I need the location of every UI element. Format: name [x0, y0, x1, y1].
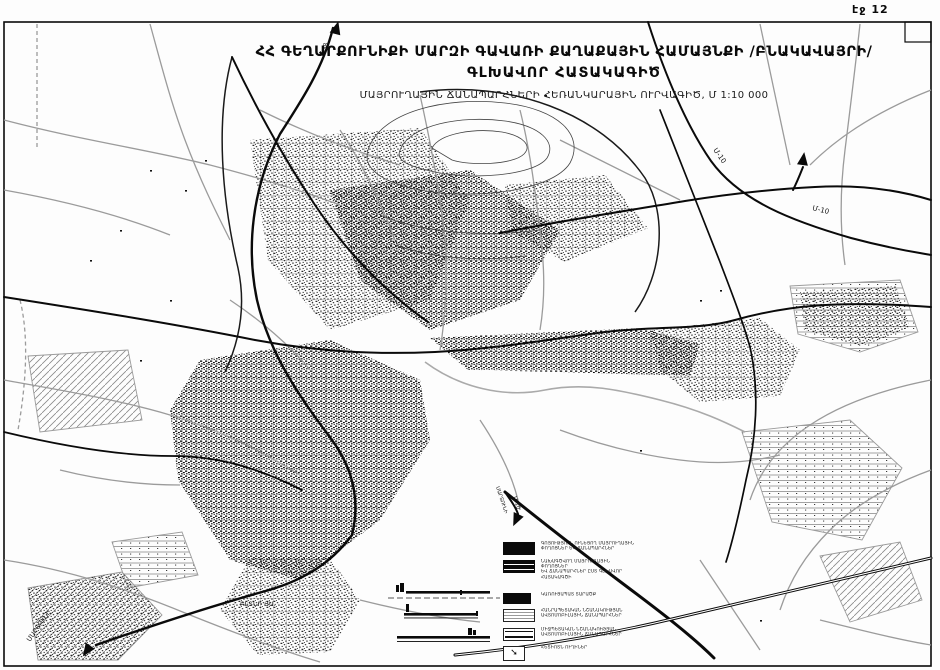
scale-bar-1 — [388, 583, 500, 598]
legend-item-label: ՀԵՏԻՈՏՆ ՈՒՂԻՆԵՐ — [541, 645, 636, 650]
legend-item-label: ՆԱԽԱԳԾՎՈՂ ՄԱՅՐՈՒՂԱՅԻՆ ՓՈՂՈՑՆԵՐ ԵՎ ՃԱՆԱՊԱ… — [541, 559, 636, 580]
planned-main-road-symbol — [503, 560, 535, 573]
legend-item-label: ՀԱՆՐԱՊԵՏԱԿԱՆ ՆՇԱՆԱԿՈՒԹՅԱՆ ԱՎՏՈՄՈԲԻԼԱՅԻՆ … — [541, 608, 636, 618]
legend-item-label: ԳՈՅՈՒԹՅՈՒՆ ՈՒՆԵՑՈՂ ՄԱՅՐՈՒՂԱՅԻՆ ՓՈՂՈՑՆԵՐ … — [541, 541, 636, 551]
pedestrian-route-arrow-icon: ➘ — [503, 646, 525, 661]
frame-corner-notch — [905, 22, 931, 42]
road-label-m10-upper: Մ-10 — [711, 147, 727, 166]
road-label-martuni-south: ՄԱՐՏՈՒՆԻ — [494, 486, 509, 515]
northeast-exit-arrow — [797, 151, 810, 165]
republican-road-symbol — [503, 609, 535, 622]
legend-item-label: ԿԱՌՈՒՑԱՊԱՏ ՏԱՐԱԾՔ — [541, 592, 636, 597]
scale-bars — [388, 583, 500, 642]
district-label: ԲԼՏՆԻ ՅԱ. — [240, 600, 276, 608]
legend-item-built-up: ԿԱՌՈՒՑԱՊԱՏ ՏԱՐԱԾՔ — [503, 592, 673, 604]
road-label-h38: Հ-38 — [320, 42, 330, 57]
legend-item-pedestrian: ➘ ՀԵՏԻՈՏՆ ՈՒՂԻՆԵՐ — [503, 645, 673, 661]
built-up-area-symbol — [503, 593, 531, 604]
road-label-m10-lower: Մ-10 — [812, 204, 830, 216]
south-exit-arrow — [508, 512, 523, 528]
legend-item-planned-roads: ՆԱԽԱԳԾՎՈՂ ՄԱՅՐՈՒՂԱՅԻՆ ՓՈՂՈՑՆԵՐ ԵՎ ՃԱՆԱՊԱ… — [503, 559, 673, 588]
legend-item-interstate-roads: ՄԻՋՊԵՏԱԿԱՆ ՆՇԱՆԱԿՈՒԹՅԱՆ ԱՎՏՈՄՈԲԻԼԱՅԻՆ ՃԱ… — [503, 627, 673, 641]
scale-bar-3 — [397, 628, 490, 642]
legend-item-label: ՄԻՋՊԵՏԱԿԱՆ ՆՇԱՆԱԿՈՒԹՅԱՆ ԱՎՏՈՄՈԲԻԼԱՅԻՆ ՃԱ… — [541, 627, 636, 637]
map-legend: ԳՈՅՈՒԹՅՈՒՆ ՈՒՆԵՑՈՂ ՄԱՅՐՈՒՂԱՅԻՆ ՓՈՂՈՑՆԵՐ … — [503, 541, 673, 665]
interstate-road-symbol — [503, 628, 535, 641]
legend-item-existing-roads: ԳՈՅՈՒԹՅՈՒՆ ՈՒՆԵՑՈՂ ՄԱՅՐՈՒՂԱՅԻՆ ՓՈՂՈՑՆԵՐ … — [503, 541, 673, 555]
existing-main-road-symbol — [503, 542, 535, 555]
master-plan-map: Մ-10 Մ-10 Հ-38 ՄԱՐՏՈՒՆԻ ՄԱՐՏՈՒՆԻ Մ-10 ԲԼ… — [0, 0, 940, 670]
scanned-map-page: էջ 12 — [0, 0, 940, 670]
legend-item-republican-roads: ՀԱՆՐԱՊԵՏԱԿԱՆ ՆՇԱՆԱԿՈՒԹՅԱՆ ԱՎՏՈՄՈԲԻԼԱՅԻՆ … — [503, 608, 673, 622]
road-m10 — [648, 22, 931, 255]
